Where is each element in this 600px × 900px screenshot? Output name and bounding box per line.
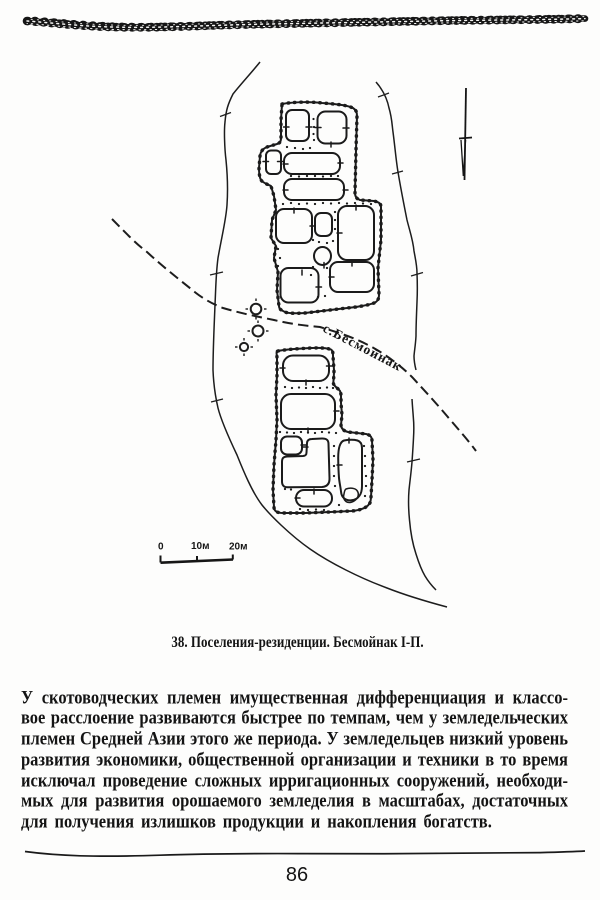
svg-text:20м: 20м bbox=[229, 542, 248, 553]
svg-text:0: 0 bbox=[158, 542, 164, 553]
svg-text:10м: 10м bbox=[191, 541, 210, 552]
